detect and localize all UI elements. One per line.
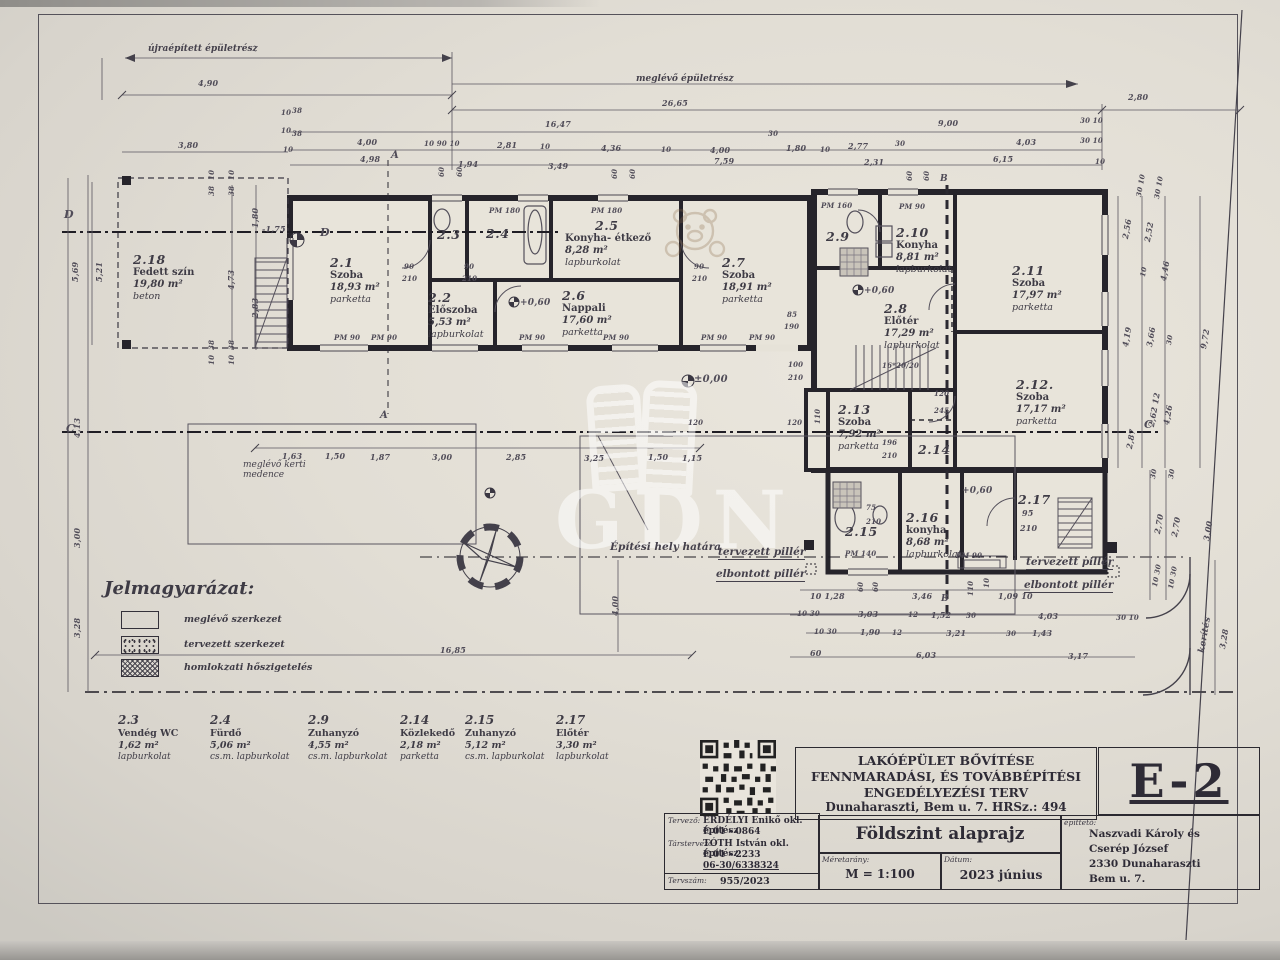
note-demolished-pillar: elbontott pillér [1024,579,1113,593]
project-title-line3: ENGEDÉLYEZÉSI TERV [796,785,1096,801]
dimension-label: 10 [281,126,291,135]
date-label: Dátum: [944,855,972,864]
dimension-label: 85 [787,310,797,319]
room-2-12: 2.12. Szoba 17,17 m² parketta [1016,377,1066,427]
room-2-13: 2.13 Szoba 7,92 m² parketta [838,402,881,452]
title-block-scale: Méretarány: M = 1:100 [818,852,942,890]
dimension-label: 30 [895,139,905,148]
dimension-label: 10 30 [797,609,820,618]
dimension-label: PM 90 [956,551,982,560]
title-block-drawing-title: Földszint alaprajz [818,815,1062,854]
dimension-label: 12 [908,610,918,619]
dimension-label: D [64,208,74,221]
note-demolished-pillar: elbontott pillér [716,568,805,582]
dimension-label: 10 [982,578,991,588]
dimension-label: 1,50 [648,452,668,462]
room-2-17: 2.17 [1018,492,1051,507]
dimension-label: 60 [810,648,822,658]
dimension-label: PM 180 [591,206,622,215]
schedule-entry: 2.17 Előtér 3,30 m² lapburkolat [556,713,609,763]
legend-label-existing: meglévő szerkezet [184,614,282,625]
dimension-label: 1,43 [1032,628,1052,638]
dimension-label: PM 90 [701,333,727,342]
dimension-label: PM 90 [603,333,629,342]
dimension-label: 210 [1020,523,1037,533]
dimension-label: 6,15 [993,154,1013,164]
dimension-label: 2,81 [497,140,517,150]
teddy-bear-stamp [640,203,750,263]
dimension-label: 190 [784,322,799,331]
dimension-label: 3,21 [946,628,966,638]
dimension-label: 120 [934,389,949,398]
dimension-label: 120 [787,418,802,427]
dimension-label: 210 [402,274,417,283]
title-block-date: Dátum: 2023 június [940,852,1062,890]
dimension-label: 4,73 [226,270,236,290]
plan-number: 955/2023 [720,876,770,887]
dimension-label: C [66,422,75,435]
dimension-label: 10 [661,145,671,154]
project-title-line1: LAKÓÉPÜLET BŐVÍTÉSE [796,753,1096,769]
dimension-label: A [391,150,399,161]
dimension-label: 60 [856,582,865,592]
dimension-label: B [940,174,948,184]
dimension-label: 210 [882,451,897,460]
dimension-label: D [320,226,330,239]
room-2-18: 2.18 Fedett szín 19,80 m² beton [133,252,194,302]
dimension-label: 110 [966,581,975,596]
legend-swatch-existing [121,611,159,629]
dimension-label: 38 [292,129,302,138]
dimension-label: 38 [227,340,236,350]
dimension-label: +0,60 [520,298,550,308]
dimension-label: 1,09 10 [998,591,1033,601]
room-2-4: 2.4 [486,226,510,241]
client-address1: 2330 Dunaharaszti [1089,858,1201,870]
dimension-label: 3,25 [584,453,604,463]
room-2-8: 2.8 Előtér 17,29 m² lapburkolat [884,301,940,351]
dimension-label: 30 [1148,468,1159,480]
dimension-label: 1,80 [250,208,260,228]
dimension-label: PM 90 [371,333,397,342]
note-planned-pillar: tervezett pillér [1026,556,1113,570]
dimension-label: PM 90 [749,333,775,342]
designer-reg: É 01 - 0864 [703,827,761,837]
dimension-label: 30 10 [1080,136,1103,145]
dimension-label: 10 [281,108,291,117]
dimension-label: 3,00 [432,452,452,462]
room-2-1: 2.1 Szoba 18,93 m² parketta [330,255,380,305]
dimension-label: 90 [694,262,704,271]
dimension-label: 30 10 [1116,613,1139,622]
dimension-label: 60 [437,167,446,177]
dimension-label: 1,52 [931,610,951,620]
room-2-5: 2.5 Konyha- étkező 8,28 m² lapburkolat [565,218,651,268]
dimension-label: 10 [1095,157,1105,166]
note-existing-part: meglévő épületrész [636,74,734,84]
dimension-label: 30 [966,611,976,620]
qr-code [700,740,776,816]
room-2-10: 2.10 Konyha 8,81 m² lapburkolat [896,225,952,275]
project-address: Dunaharaszti, Bem u. 7. HRSz.: 494 [796,800,1096,815]
dimension-label: 2,80 [1128,92,1148,102]
dimension-label: ±0,00 [694,374,728,385]
dimension-label: 3,49 [548,161,568,171]
room-2-14: 2.14 [918,442,951,457]
dimension-label: 4,00 [710,145,730,155]
dimension-label: 2,85 [506,452,526,462]
date-value: 2023 június [941,867,1061,882]
title-block-client: építtető: Naszvadi Károly és Cserép Józs… [1060,815,1260,890]
dimension-label: 75 [866,503,876,512]
dimension-label: 210 [462,274,477,283]
dimension-label: 4,98 [360,154,380,164]
dimension-label: 26,65 [662,98,688,108]
dimension-label: 1,87 [370,452,390,462]
plan-number-label: Tervszám: [668,876,707,885]
client-label: építtető: [1064,818,1096,827]
dimension-label: 30 [1166,468,1177,480]
dimension-label: 2,31 [864,157,884,167]
dimension-label: 4,00 [610,596,620,616]
room-2-6: 2.6 Nappali 17,60 m² parketta [562,288,612,338]
schedule-entry: 2.3 Vendég WC 1,62 m² lapburkolat [118,713,178,763]
dimension-label: 90 [404,262,414,271]
dimension-label: 1,90 [860,627,880,637]
dimension-label: 60 [610,169,619,179]
dimension-label: 60 [455,167,464,177]
dimension-label: 10 [1138,266,1149,278]
dimension-label: A [380,410,388,421]
dimension-label: 4,36 [601,143,621,153]
dimension-label: 10 30 [814,627,837,636]
dimension-label: 30 [1006,629,1016,638]
schedule-entry: 2.4 Fürdő 5,06 m² cs.m. lapburkolat [210,713,289,763]
room-2-2: 2.2 Előszoba 5,53 m² lapburkolat [428,290,484,340]
schedule-entry: 2.9 Zuhanyzó 4,55 m² cs.m. lapburkolat [308,713,387,763]
dimension-label: 10 [227,355,236,365]
dimension-label: PM 90 [519,333,545,342]
note-planned-pillar: tervezett pillér [718,546,805,560]
dimension-label: 30 [1164,334,1175,346]
legend-swatch-insulation [121,659,159,677]
dimension-label: 5,69 [70,262,80,282]
dimension-label: 4,03 [1016,137,1036,147]
room-2-15: 2.15 [845,524,878,539]
title-block-designers: Tervező: ERDÉLYI Enikő okl. építész É 01… [664,813,820,890]
drawing-title: Földszint alaprajz [819,824,1061,844]
dimension-label: 60 [922,171,931,181]
scale-label: Méretarány: [822,855,869,864]
dimension-label: 3,80 [178,140,198,150]
dimension-label: 3,46 [912,591,932,601]
room-2-3: 2.3 [437,227,461,242]
dimension-label: 3,17 [1068,651,1088,661]
dimension-label: 4,03 [1038,611,1058,621]
dimension-label: 3,03 [858,609,878,619]
dimension-label: PM 90 [334,333,360,342]
dimension-label: 10 [227,170,236,180]
dimension-label: 1,63 [282,451,302,461]
client-address2: Bem u. 7. [1089,873,1145,885]
dimension-label: 2,77 [848,141,868,151]
dimension-label: 210 [788,373,803,382]
co-designer-phone: 06-30/6338324 [703,861,779,871]
dimension-label: 3,28 [72,618,82,638]
title-block-sheet-code: E-2 [1098,747,1260,815]
dimension-label: 12 [892,628,902,637]
legend-title: Jelmagyarázat: [104,578,254,599]
dimension-label: 30 10 [1080,116,1103,125]
dimension-label: 38 [207,340,216,350]
dimension-label: 10 [283,145,293,154]
co-designer-reg: É 01 - 2233 [703,850,761,860]
dimension-label: 7,59 [714,156,734,166]
dimension-label: 1,15 [682,453,702,463]
dimension-label: 4,00 [357,137,377,147]
client-name1: Naszvadi Károly és [1089,828,1200,840]
dimension-label: 38 [207,186,216,196]
dimension-label: 120 [688,418,703,427]
dimension-label: 60 [905,171,914,181]
note-site-boundary: Építési hely határa [610,541,721,553]
dimension-label: 110 [813,409,822,424]
dimension-label: 9,00 [938,118,958,128]
dimension-label: PM 160 [821,201,852,210]
dimension-label: 90 [464,262,474,271]
legend-label-planned: tervezett szerkezet [184,639,285,650]
schedule-entry: 2.15 Zuhanyzó 5,12 m² cs.m. lapburkolat [465,713,544,763]
dimension-label: 1,50 [325,451,345,461]
dimension-label: 38 [227,186,236,196]
dimension-label: 10 [820,145,830,154]
dimension-label: 196 [882,438,897,447]
dimension-label: 60 [628,169,637,179]
dimension-label: 10 90 10 [424,139,460,148]
dimension-label: 16*20/20 [882,361,919,370]
dimension-label: C [1144,418,1153,431]
dimension-label: PM 180 [489,206,520,215]
legend-swatch-planned [121,636,159,654]
dimension-label: 10 1,28 [810,591,845,601]
dimension-label: 5,21 [94,262,104,282]
designer-label: Tervező: [668,816,700,825]
dimension-label: 245 [934,406,949,415]
dimension-label: 10 [207,170,216,180]
legend-label-insulation: homlokzati hőszigetelés [184,662,312,673]
dimension-label: PM 90 [899,202,925,211]
title-block-project: LAKÓÉPÜLET BŐVÍTÉSE FENNMARADÁSI, ÉS TOV… [795,747,1097,820]
room-2-7: 2.7 Szoba 18,91 m² parketta [722,255,772,305]
scanned-floor-plan-sheet: { "watermark": {"text": "GDN"}, "annotat… [0,0,1280,960]
dimension-label: 60 [871,582,880,592]
dimension-label: 210 [866,517,881,526]
note-pool: meglévő kerti medence [243,460,323,480]
dimension-label: +0,60 [962,486,992,496]
dimension-label: 3,00 [72,528,82,548]
dimension-label: 4,90 [198,78,218,88]
room-2-9: 2.9 [826,229,850,244]
dimension-label: 16,47 [545,119,571,129]
scale-value: M = 1:100 [819,867,941,881]
room-2-16: 2.16 konyha 8,68 m² lapburkolat [906,510,962,560]
dimension-label: +0,60 [864,286,894,296]
sheet-code: E-2 [1099,754,1259,808]
dimension-label: 100 [788,360,803,369]
dimension-label: B [941,594,949,604]
room-2-11: 2.11 Szoba 17,97 m² parketta [1012,263,1062,313]
dimension-label: 10 [540,142,550,151]
dimension-label: 2,83 [250,298,260,318]
project-title-line2: FENNMARADÁSI, ÉS TOVÁBBÉPÍTÉSI [796,769,1096,785]
dimension-label: 210 [692,274,707,283]
schedule-entry: 2.14 Közlekedő 2,18 m² parketta [400,713,455,763]
dimension-label: 1,80 [786,143,806,153]
dimension-label: 95 [1022,508,1034,518]
client-name2: Cserép József [1089,843,1168,855]
dimension-label: 6,03 [916,650,936,660]
note-rebuilt-part: újraépített épületrész [148,44,258,54]
dimension-label: 30 [768,129,778,138]
dimension-label: 38 [292,106,302,115]
dimension-label: 16,85 [440,645,466,655]
dimension-label: PM 140 [845,549,876,558]
dimension-label: -1,75 [262,224,286,234]
dimension-label: 10 [207,355,216,365]
